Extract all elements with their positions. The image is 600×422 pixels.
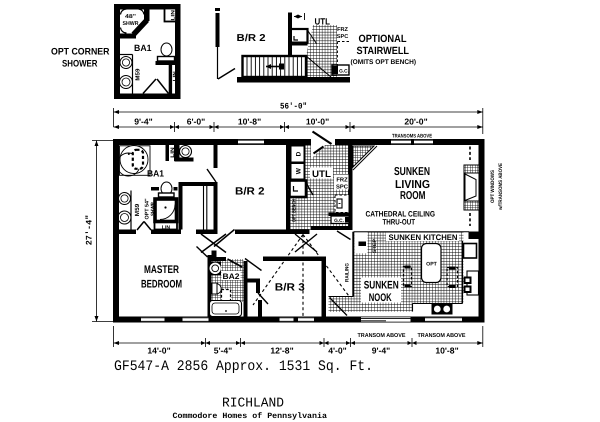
svg-text:FRZ: FRZ [337, 27, 348, 33]
svg-text:RICHLAND: RICHLAND [222, 397, 284, 412]
svg-text:SPC: SPC [336, 184, 349, 191]
svg-text:9'-4": 9'-4" [134, 117, 153, 127]
svg-text:G.C.: G.C. [334, 218, 344, 224]
svg-text:OPT: OPT [426, 262, 437, 268]
svg-text:SPC: SPC [337, 34, 349, 40]
svg-text:BA1: BA1 [134, 43, 152, 53]
svg-text:TRANSOMS ABOVE: TRANSOMS ABOVE [392, 133, 432, 139]
svg-text:STAIRWELL: STAIRWELL [357, 45, 410, 57]
svg-text:LIN: LIN [170, 10, 176, 21]
svg-text:M59: M59 [134, 203, 141, 216]
svg-text:OPT WINDOWS: OPT WINDOWS [490, 169, 496, 203]
svg-text:(OMITS OPT BENCH): (OMITS OPT BENCH) [351, 59, 417, 66]
svg-text:W: W [296, 167, 303, 174]
svg-text:ROOM: ROOM [400, 190, 426, 202]
svg-text:MASTER: MASTER [144, 264, 179, 276]
svg-text:Commodore Homes of Pennsylvani: Commodore Homes of Pennsylvania [173, 412, 328, 421]
svg-text:FRZ: FRZ [336, 178, 348, 184]
svg-text:FAN: FAN [470, 234, 480, 240]
svg-text:OPTIONAL: OPTIONAL [359, 33, 408, 45]
svg-text:TRANSOM ABOVE: TRANSOM ABOVE [418, 333, 466, 339]
svg-text:BA1: BA1 [147, 169, 164, 179]
svg-text:SUNKEN: SUNKEN [364, 280, 399, 292]
svg-text:48": 48" [125, 14, 136, 20]
svg-text:BEDROOM: BEDROOM [141, 278, 182, 290]
svg-text:9'-4": 9'-4" [372, 346, 391, 356]
svg-text:B/R 2: B/R 2 [237, 33, 266, 44]
svg-text:6'-0": 6'-0" [187, 117, 206, 127]
svg-text:STEP: STEP [372, 238, 378, 253]
svg-text:27'-4": 27'-4" [85, 215, 95, 246]
svg-text:SHOWER: SHOWER [62, 59, 98, 70]
svg-text:UTL: UTL [312, 169, 331, 180]
svg-text:M59: M59 [134, 68, 141, 81]
svg-text:w/TRANSOMS ABOVE: w/TRANSOMS ABOVE [498, 162, 504, 210]
svg-text:10'-8": 10'-8" [435, 346, 458, 356]
svg-text:10'-8": 10'-8" [238, 117, 261, 127]
svg-text:GF547-A 2856 Approx. 1531 Sq.: GF547-A 2856 Approx. 1531 Sq. Ft. [114, 359, 373, 375]
svg-text:OPT CORNER: OPT CORNER [51, 47, 110, 58]
svg-text:12'-8": 12'-8" [270, 346, 293, 356]
svg-text:SHWR: SHWR [123, 21, 139, 27]
svg-text:NOOK: NOOK [369, 292, 392, 304]
svg-text:56'-0": 56'-0" [280, 102, 307, 112]
svg-text:SHWR: SHWR [150, 202, 156, 216]
svg-text:5'-4": 5'-4" [214, 346, 233, 356]
svg-text:B/R 3: B/R 3 [275, 281, 305, 293]
svg-text:10'-0": 10'-0" [306, 117, 329, 127]
svg-text:4'-0": 4'-0" [328, 346, 347, 356]
svg-text:B/R 2: B/R 2 [235, 186, 265, 198]
svg-text:LIN: LIN [172, 70, 177, 81]
svg-text:THRU-OUT: THRU-OUT [383, 218, 416, 227]
svg-text:SUNKEN: SUNKEN [394, 166, 430, 178]
svg-text:SUNKEN KITCHEN: SUNKEN KITCHEN [389, 233, 458, 242]
svg-text:OPT BENCH: OPT BENCH [291, 199, 297, 222]
svg-text:14'-0": 14'-0" [147, 346, 170, 356]
svg-text:BA2: BA2 [223, 272, 241, 281]
svg-text:20'-0": 20'-0" [404, 117, 427, 127]
svg-text:D: D [296, 151, 303, 156]
svg-text:G.C.: G.C. [339, 69, 349, 75]
svg-text:RAILING: RAILING [345, 263, 351, 282]
svg-text:TRANSOM ABOVE: TRANSOM ABOVE [358, 333, 406, 339]
